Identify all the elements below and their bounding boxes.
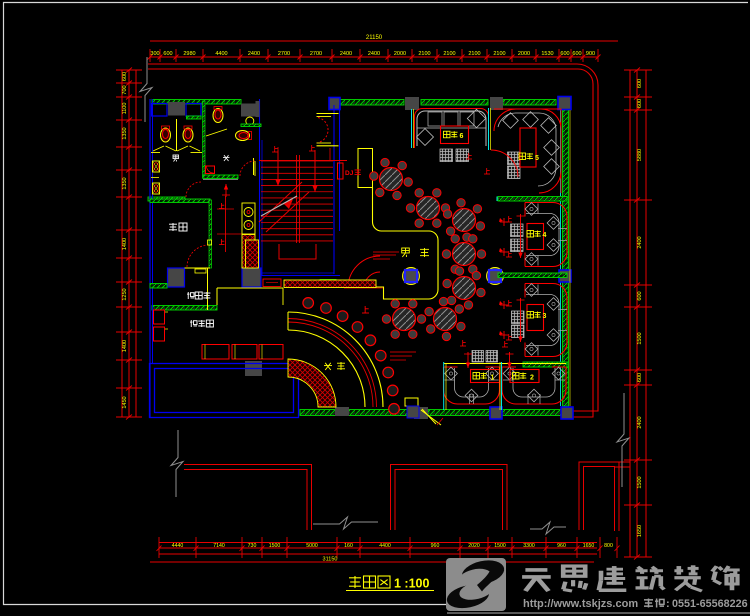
svg-text:960: 960 [557,543,566,549]
svg-text:600: 600 [637,373,643,382]
svg-text:DJ: DJ [345,170,354,177]
svg-text:2100: 2100 [418,51,430,57]
svg-text::: : [666,598,670,610]
svg-text:730: 730 [248,543,257,549]
svg-text:600: 600 [637,79,643,88]
svg-text:2400: 2400 [637,416,643,428]
svg-text:http://www.tskjzs.com: http://www.tskjzs.com [523,598,638,610]
svg-text:1350: 1350 [122,177,128,189]
svg-text:2700: 2700 [310,51,322,57]
svg-text:2400: 2400 [340,51,352,57]
svg-text:2400: 2400 [368,51,380,57]
svg-text:1530: 1530 [541,51,553,57]
svg-text:5000: 5000 [306,543,318,549]
svg-text:4400: 4400 [379,543,391,549]
svg-text:1400: 1400 [122,238,128,250]
svg-text:600: 600 [560,51,569,57]
svg-text:6: 6 [460,133,464,140]
svg-text:600: 600 [637,291,643,300]
svg-text:31150: 31150 [323,557,338,563]
svg-text:1500: 1500 [637,332,643,344]
svg-text:2100: 2100 [468,51,480,57]
svg-text:3: 3 [543,313,547,320]
svg-text:1500: 1500 [637,476,643,488]
svg-text:2980: 2980 [183,51,195,57]
svg-text:1 :100: 1 :100 [394,577,429,591]
svg-text:1100: 1100 [122,103,128,115]
svg-text:1650: 1650 [583,543,595,549]
svg-text:1650: 1650 [637,525,643,537]
svg-text:4440: 4440 [172,543,184,549]
svg-text:1500: 1500 [269,543,281,549]
svg-text:1250: 1250 [122,288,128,300]
svg-text:600: 600 [572,51,581,57]
svg-text:2700: 2700 [278,51,290,57]
svg-text:600: 600 [122,72,128,81]
svg-text:21150: 21150 [366,35,383,41]
svg-text:7140: 7140 [213,543,225,549]
svg-text:5880: 5880 [637,149,643,161]
svg-text:4400: 4400 [215,51,227,57]
svg-text:300: 300 [150,51,159,57]
svg-text:600: 600 [163,51,172,57]
svg-text:1500: 1500 [494,543,506,549]
svg-text:5: 5 [535,155,539,162]
svg-text:1400: 1400 [122,340,128,352]
svg-text:2100: 2100 [443,51,455,57]
svg-text:960: 960 [431,543,440,549]
svg-text:1: 1 [491,375,495,382]
svg-text:1450: 1450 [122,396,128,408]
svg-text:700: 700 [122,85,128,94]
svg-text:4: 4 [543,232,547,239]
svg-text:600: 600 [637,99,643,108]
svg-text:2400: 2400 [248,51,260,57]
svg-text:1350: 1350 [122,127,128,139]
svg-text:2400: 2400 [637,236,643,248]
svg-text:0551-65568226: 0551-65568226 [672,598,748,610]
svg-text:2020: 2020 [468,543,480,549]
svg-text:2100: 2100 [493,51,505,57]
svg-text:900: 900 [586,51,595,57]
svg-text:800: 800 [604,543,613,549]
svg-text:2000: 2000 [518,51,530,57]
svg-text:160: 160 [344,543,353,549]
svg-text:2: 2 [530,375,534,382]
svg-text:3300: 3300 [523,543,535,549]
svg-text:2000: 2000 [394,51,406,57]
